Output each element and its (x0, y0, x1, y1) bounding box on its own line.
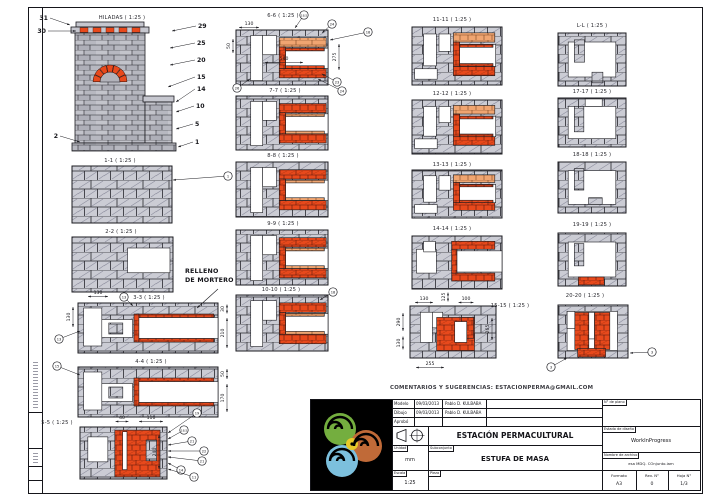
leader-arrow (67, 23, 70, 25)
drawing-text: 130 (420, 296, 429, 302)
leader-arrow (226, 376, 228, 379)
drawing-text: 18,5 (301, 13, 308, 17)
leader-arrow (416, 366, 419, 368)
leader-arrow (415, 301, 418, 303)
leader-arrow (630, 352, 633, 354)
drawing-text: 21 (190, 439, 195, 443)
mortar-fill-note-line2: DE MORTERO (185, 277, 234, 286)
comments-line: COMENTARIOS Y SUGERENCIAS: ESTACIONPERMA… (390, 385, 593, 391)
view-label-9-9: 9-9 ( 1:25 ) (267, 221, 299, 227)
titleblock-line (310, 490, 700, 491)
leader-arrow (402, 313, 404, 316)
view-5-5: 5-5 ( 1:25 )401102401918,52122211411 (41, 409, 208, 481)
drawing-text: 255 (426, 361, 435, 367)
leader-arrow (226, 311, 228, 314)
leader-arrow (239, 26, 242, 28)
leader-arrow (139, 420, 142, 422)
view-18-18: 18-18 ( 1:25 ) (558, 152, 626, 213)
drawing-text: 50 (220, 371, 226, 377)
leader-arrow (295, 25, 297, 28)
leader-arrow (88, 295, 91, 297)
drawing-text: 15 (197, 74, 206, 81)
drawing-text: 100 (462, 296, 471, 302)
view-19-19: 19-19 ( 1:25 ) (558, 222, 626, 286)
drawing-text: 3 (550, 365, 552, 369)
view-hiladas: HILADAS ( 1:25 )3130229252015141051 (37, 15, 206, 151)
leader-arrow (168, 444, 171, 446)
view-label-12-12: 12-12 ( 1:25 ) (433, 91, 472, 97)
drawing-text: 290 (396, 318, 402, 327)
drawing-text: 13 (57, 337, 62, 341)
view-label-5-5: 5-5 ( 1:25 ) (41, 420, 73, 426)
mortar-fill-note-line1: RELLENO (185, 268, 234, 277)
view-label-1-1: 1-1 ( 1:25 ) (104, 158, 136, 164)
leader-arrow (72, 307, 74, 310)
view-14-14: 14-14 ( 1:25 ) (412, 226, 502, 289)
view-label-hiladas: HILADAS ( 1:25 ) (99, 15, 146, 21)
leader-arrow (160, 420, 163, 422)
projection-symbol-icon (394, 428, 426, 443)
tb-row-name: Pablo D. KULBABA (445, 401, 501, 406)
leader-arrow (471, 301, 474, 303)
view-15-15: 15-15 ( 1:25 )130125100290130265255 (396, 293, 529, 369)
drawing-text: 19 (195, 411, 200, 415)
leader-arrow (441, 366, 444, 368)
tb-sheetno-label: Hoja N° (668, 471, 700, 479)
view-label-8-8: 8-8 ( 1:25 ) (267, 153, 299, 159)
leader-arrow (116, 420, 119, 422)
view-11-11: 11-11 ( 1:25 ) (412, 17, 502, 85)
drawing-text: 10 (196, 103, 205, 110)
company-logo (311, 400, 392, 490)
drawing-text: 15 (55, 364, 60, 368)
leader-arrow (168, 450, 171, 452)
tb-drawingno-label: N° de plano (602, 399, 627, 406)
view-label-6-6: 6-6 ( 1:25 ) (267, 13, 299, 19)
view-4-4: 4-4 ( 1:25 )5017015 (53, 359, 228, 417)
drawing-text: 30 (220, 306, 226, 312)
tb-unit-label: Unidad (392, 445, 408, 452)
leader-arrow (338, 67, 340, 70)
view-7-7: 7-7 ( 1:25 ) (236, 88, 328, 150)
leader-arrow (168, 437, 171, 439)
tb-unit-value: mm (392, 452, 428, 468)
view-label-13-13: 13-13 ( 1:25 ) (433, 162, 472, 168)
view-label-11-11: 11-11 ( 1:25 ) (433, 17, 472, 23)
leader-arrow (168, 431, 171, 433)
titleblock-line (414, 399, 415, 426)
view-1-1: 1-1 ( 1:25 )1 (72, 158, 232, 223)
leader-arrow (126, 420, 129, 422)
tb-row-name: Pablo D. KULBABA (445, 410, 501, 415)
view-3-3: 3-3 ( 1:25 )130130302101313 (55, 290, 228, 353)
project-title: ESTUFA DE MASA (428, 450, 602, 468)
drawing-text: 50 (226, 43, 232, 49)
triskelion-logo-icon (311, 400, 392, 490)
view-13-13: 13-13 ( 1:25 ) (412, 162, 502, 218)
drawing-text: 18 (366, 30, 371, 34)
leader-arrow (226, 384, 228, 387)
leader-arrow (256, 26, 259, 28)
view-label-3-3: 3-3 ( 1:25 ) (133, 295, 165, 301)
view-6-6: 6-6 ( 1:25 )1305054027518,52418232426 (226, 11, 372, 95)
leader-arrow (176, 127, 179, 129)
leader-arrow (402, 337, 404, 340)
view-label-17-17: 17-17 ( 1:25 ) (573, 89, 612, 95)
leader-arrow (447, 293, 449, 296)
drawing-text: 240 (152, 448, 158, 457)
tb-subassembly-label: Subconjunto (428, 445, 454, 452)
view-label-18-18: 18-18 ( 1:25 ) (573, 152, 612, 158)
drawing-sheet: HILADAS ( 1:25 )31302292520151410511-1 (… (0, 0, 711, 503)
leader-arrow (447, 299, 449, 302)
leader-arrow (338, 44, 340, 47)
tb-filename-value: esa MDQ. COnjunto.iam (602, 458, 700, 469)
view-label-19-19: 19-19 ( 1:25 ) (573, 222, 612, 228)
drawing-text: 130 (66, 313, 72, 322)
drawing-text: 275 (332, 53, 338, 62)
drawing-text: 20 (197, 57, 206, 64)
titleblock-line (700, 399, 701, 491)
drawing-text: 24 (330, 22, 335, 26)
leader-arrow (232, 50, 234, 53)
drawing-text: 13 (122, 295, 127, 299)
view-2-2: 2-2 ( 1:25 ) (72, 229, 173, 292)
drawing-text: 30 (37, 28, 46, 35)
drawing-text: 540 (280, 56, 289, 62)
tb-scale-label: Escala (392, 470, 407, 477)
leader-arrow (72, 324, 74, 327)
drawing-text: 18,5 (181, 428, 188, 432)
drawing-text: 265 (485, 325, 491, 334)
view-label-L-L: L-L ( 1:25 ) (577, 23, 608, 29)
view-20-20: 20-20 ( 1:25 )33 (547, 293, 656, 371)
tb-rev-label: Rev. N° (636, 471, 668, 479)
tb-row-label: Dibujo (394, 410, 413, 415)
leader-arrow (226, 369, 228, 372)
view-label-4-4: 4-4 ( 1:25 ) (135, 359, 167, 365)
leader-arrow (430, 301, 433, 303)
leader-arrow (168, 463, 171, 465)
titleblock-line (392, 408, 602, 409)
drawing-text: 26 (235, 86, 240, 90)
drawing-text: 14 (197, 86, 206, 93)
drawing-text: 29 (198, 23, 207, 30)
tb-scale-value: 1:25 (392, 477, 428, 489)
drawing-text: 1 (195, 139, 199, 146)
drawing-text: 11 (192, 475, 197, 479)
tb-row-date: 09/03/2013 (416, 410, 441, 415)
leader-arrow (226, 345, 228, 348)
leader-arrow (226, 409, 228, 412)
tb-designstate-value: WorkInProgress (602, 432, 700, 450)
leader-arrow (105, 295, 108, 297)
drawing-text: 130 (396, 339, 402, 348)
drawing-text: 130 (245, 21, 254, 27)
drawing-text: 5 (195, 121, 199, 128)
drawing-text: 3 (651, 350, 653, 354)
drawing-text: 130 (94, 290, 103, 296)
mortar-fill-note: RELLENO DE MORTERO (185, 268, 234, 285)
drawing-text: 1 (227, 174, 229, 178)
tb-row-date: 09/03/2013 (416, 401, 441, 406)
organization-title: ESTACIÓN PERMACULTURAL (428, 426, 602, 445)
drawing-text: 31 (39, 15, 48, 22)
titleblock-line (392, 445, 602, 446)
leader-arrow (232, 39, 234, 42)
drawing-text: 22 (202, 449, 207, 453)
drawing-text: 21 (200, 459, 205, 463)
drawing-text: 170 (220, 394, 226, 403)
drawing-text: 25 (197, 40, 206, 47)
view-10-10: 10-10 ( 1:25 )18 (236, 287, 337, 351)
leader-arrow (176, 110, 179, 112)
leader-arrow (176, 100, 179, 102)
leader-arrow (168, 469, 171, 471)
leader-arrow (402, 347, 404, 350)
drawing-text: 24 (340, 89, 345, 93)
drawing-text: 110 (147, 415, 156, 421)
leader-arrow (226, 305, 228, 308)
leader-arrow (168, 456, 171, 458)
tb-part-label: Pieza (428, 470, 441, 477)
view-label-15-15: 15-15 ( 1:25 ) (491, 303, 530, 309)
drawing-text: 2 (54, 133, 58, 140)
view-L-L: L-L ( 1:25 ) (558, 23, 626, 86)
titleblock-line (392, 417, 602, 418)
titleblock-line (442, 399, 443, 426)
drawing-text: 23 (335, 80, 340, 84)
view-label-7-7: 7-7 ( 1:25 ) (269, 88, 301, 94)
drawing-text: 210 (220, 329, 226, 338)
drawing-text: 18 (331, 290, 336, 294)
view-label-14-14: 14-14 ( 1:25 ) (433, 226, 472, 232)
drawing-text: 40 (119, 415, 125, 421)
view-8-8: 8-8 ( 1:25 ) (236, 153, 328, 217)
tb-sheetno-value: 1/3 (668, 479, 700, 489)
tb-row-label: Aprobó (394, 419, 413, 424)
drawing-text: 14 (179, 468, 184, 472)
tb-format-label: Formato (602, 471, 636, 479)
tb-rev-value: 0 (636, 479, 668, 489)
view-label-10-10: 10-10 ( 1:25 ) (262, 287, 301, 293)
view-12-12: 12-12 ( 1:25 ) (412, 91, 502, 154)
view-9-9: 9-9 ( 1:25 ) (236, 221, 328, 285)
leader-arrow (402, 328, 404, 331)
tb-row-label: Modelo (394, 401, 413, 406)
leader-arrow (168, 85, 171, 87)
tb-format-value: A3 (602, 479, 636, 489)
view-label-20-20: 20-20 ( 1:25 ) (566, 293, 605, 299)
view-17-17: 17-17 ( 1:25 ) (558, 89, 626, 147)
leader-arrow (226, 318, 228, 321)
view-label-2-2: 2-2 ( 1:25 ) (105, 229, 137, 235)
drawing-text: 125 (441, 293, 447, 302)
leader-arrow (178, 145, 181, 147)
